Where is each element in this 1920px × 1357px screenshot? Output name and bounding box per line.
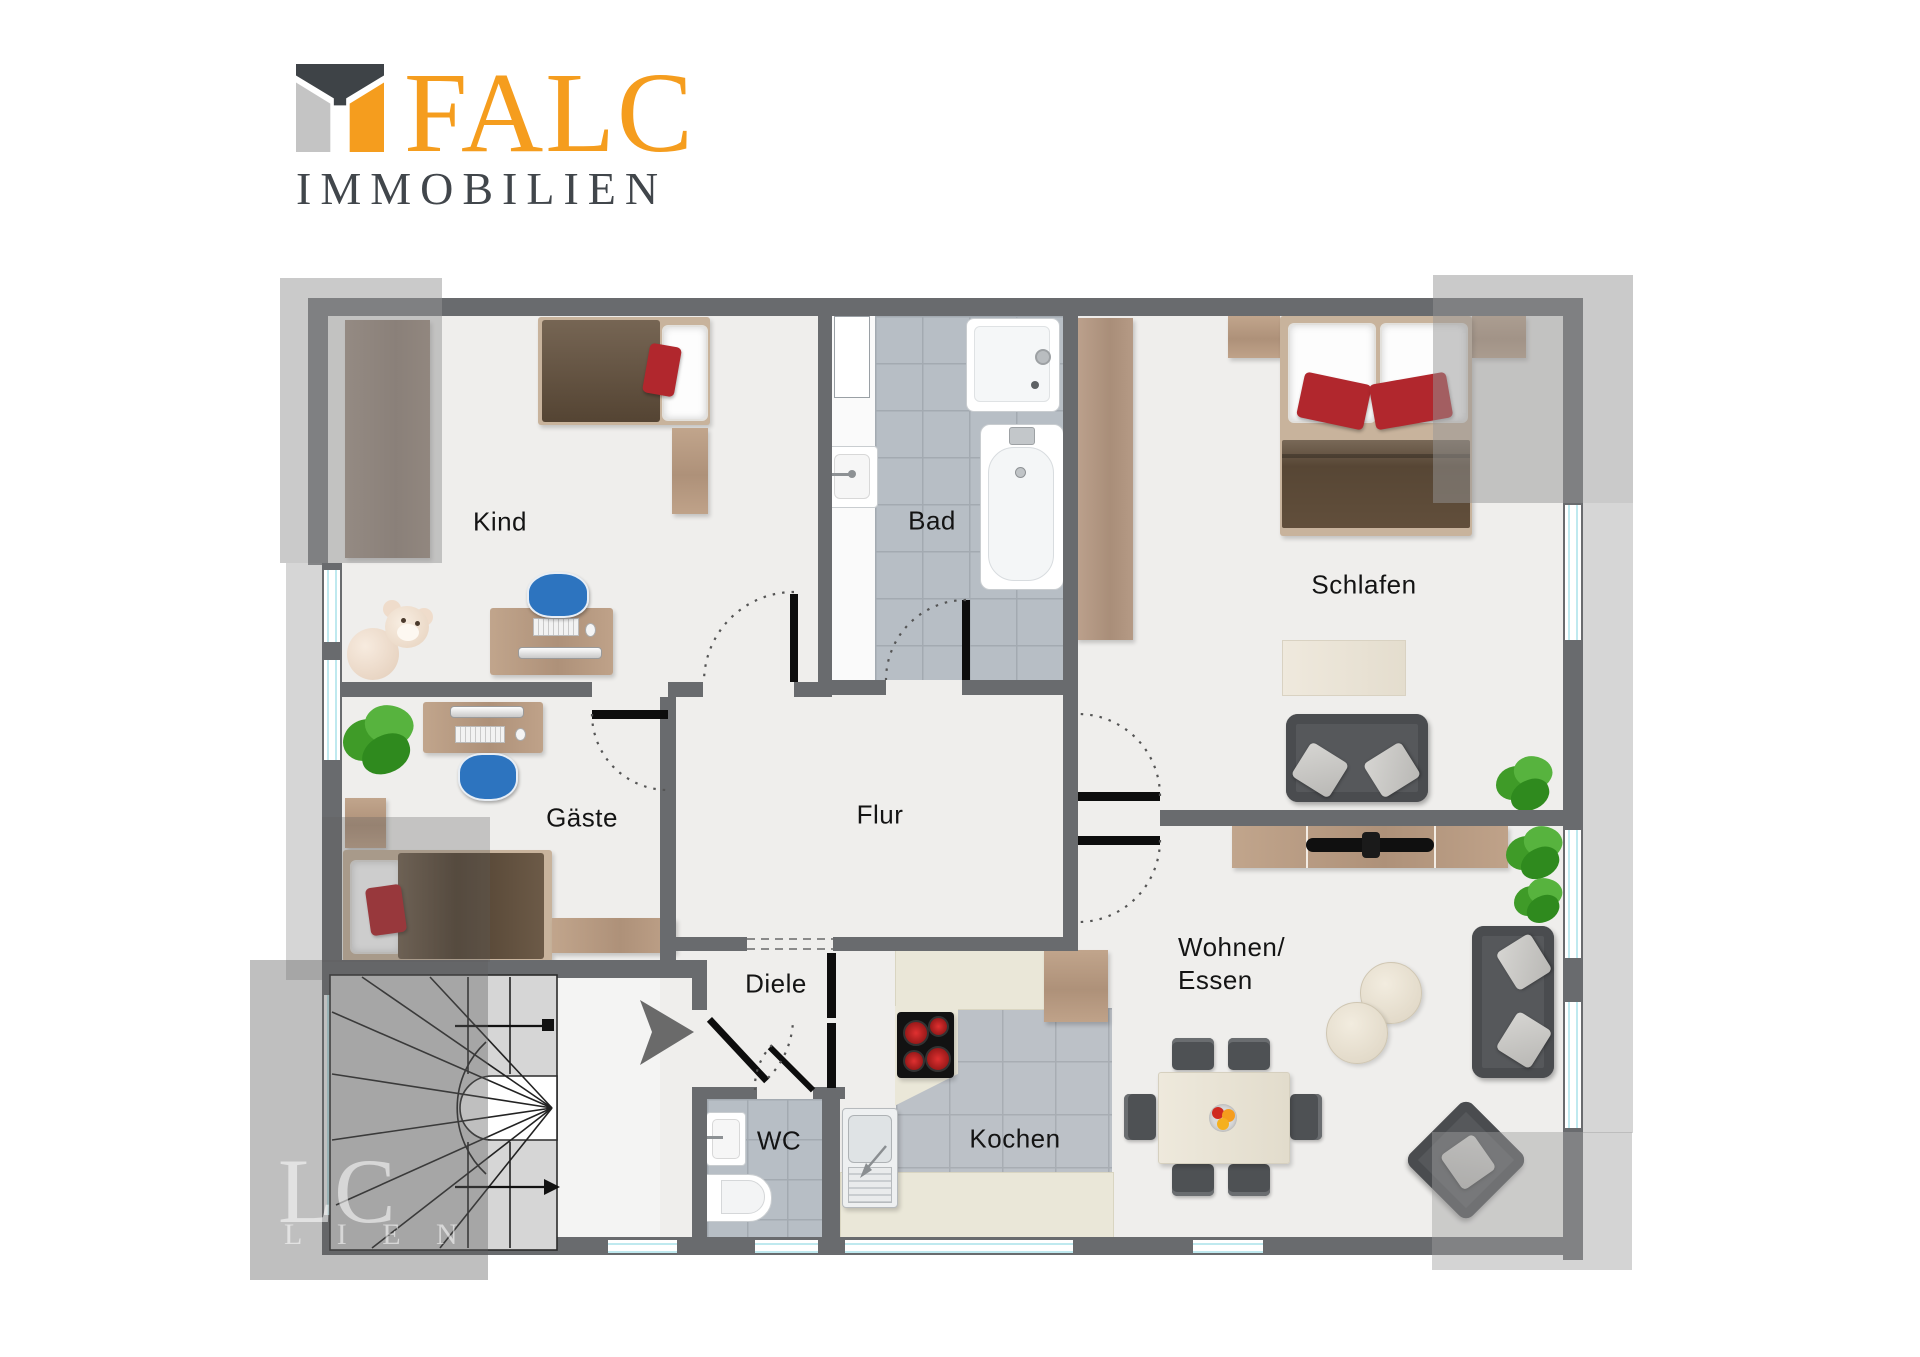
door-swing-arc	[886, 600, 966, 680]
sink-tap-icon	[860, 1146, 886, 1178]
door-swing-arc	[768, 1020, 793, 1078]
door-swing-arc	[755, 1045, 772, 1090]
room-label-kochen: Kochen	[969, 1124, 1060, 1155]
room-label-gaeste: Gäste	[546, 803, 618, 834]
wall-opening	[747, 939, 833, 949]
room-label-bad: Bad	[908, 506, 956, 537]
exterior-shade-right-strip	[1583, 503, 1633, 1133]
door-swing-arc	[1078, 714, 1160, 796]
door-swing-arc	[704, 592, 794, 682]
room-label-wc: WC	[757, 1126, 801, 1157]
door-swing-arcs	[592, 592, 1160, 1090]
exterior-shade-top-left	[280, 278, 442, 563]
entrance-arrow-icon	[640, 1000, 694, 1065]
floor-plan: FALC IMMOBILIEN	[0, 0, 1920, 1357]
exterior-shade-left-strip	[286, 563, 322, 980]
room-label-diele: Diele	[745, 969, 807, 1000]
watermark-logo-small: L I E N	[284, 1218, 472, 1252]
exterior-shade-top-right	[1433, 275, 1633, 503]
exterior-shade-bottom-left-upper	[322, 817, 490, 962]
room-label-flur: Flur	[857, 800, 904, 831]
door-swing-arc	[1078, 840, 1160, 922]
room-label-wohnen-line2: Essen	[1178, 965, 1253, 996]
exterior-shade-bottom-right	[1432, 1132, 1632, 1270]
stair-start-marker	[542, 1019, 554, 1031]
room-label-schlafen: Schlafen	[1311, 570, 1416, 601]
room-label-wohnen-line1: Wohnen/	[1178, 932, 1285, 963]
room-label-kind: Kind	[473, 507, 527, 538]
door-swing-arc	[592, 714, 668, 790]
